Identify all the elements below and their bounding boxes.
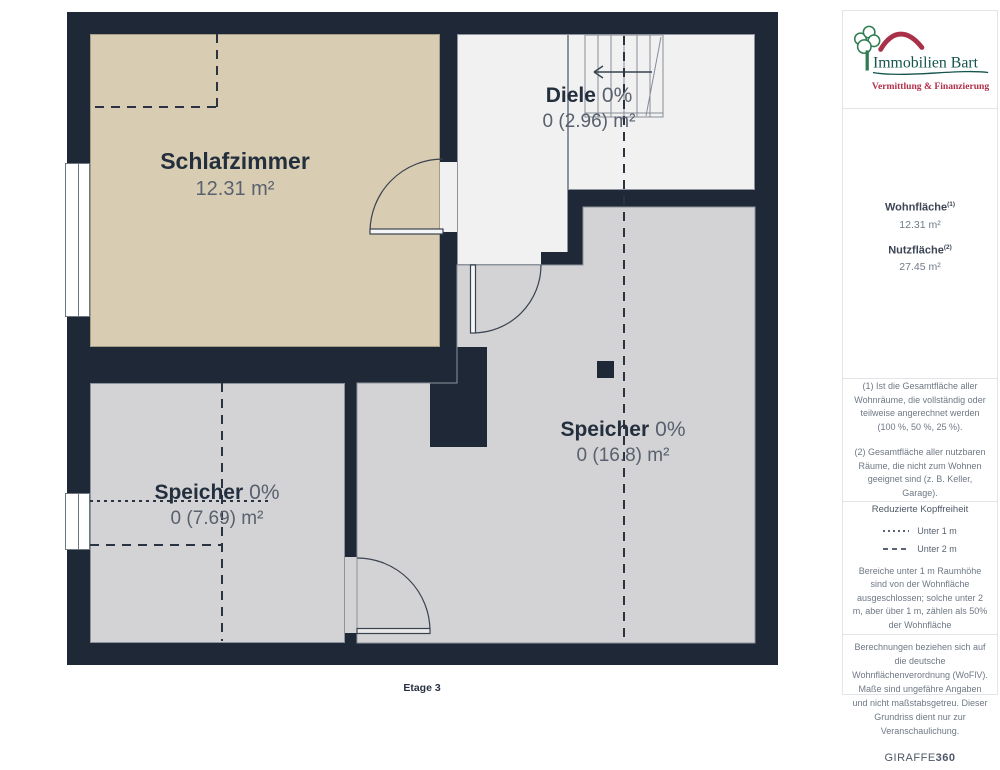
window-schlafzimmer [65,163,90,317]
wall-outer-right [755,12,778,665]
company-logo: Immobilien Bart Vermittlung & Finanzieru… [848,19,992,101]
wall-diele-right [568,207,583,252]
giraffe360-brand: GIRAFFE360 [884,752,955,764]
room-name: Speicher [560,418,649,441]
room-diele-floor [457,34,568,265]
nutzflaeche-label: Nutzfläche(2) [888,244,952,257]
dashed-line-icon [883,548,909,550]
footnote-1: (1) Ist die Gesamtfläche aller Wohnräume… [852,380,988,434]
wall-speicher-divider-stub [345,633,357,643]
legend-under-1m: Unter 1 m [883,526,957,536]
door-opening-schlafzimmer [440,162,457,232]
headroom-note: Bereiche unter 1 m Raumhöhe sind von der… [852,565,988,633]
wall-outer-top [67,12,778,34]
label-speicher-klein: Speicher0% 0 (7.69) m² [108,481,326,530]
headroom-dash-horizontal-schlafzimmer [95,106,217,108]
disclaimer-card: Berechnungen beziehen sich auf die deuts… [843,634,997,770]
legend-label: Unter 1 m [917,526,957,536]
label-diele: Diele0% 0 (2.96) m² [499,84,679,133]
window-speicher [65,493,90,550]
legend-label: Unter 2 m [917,544,957,554]
area-summary-card: Wohnfläche(1) 12.31 m² Nutzfläche(2) 27.… [843,108,997,378]
room-area: 0 (2.96) m² [499,111,679,133]
label-schlafzimmer: Schlafzimmer 12.31 m² [95,148,375,201]
headroom-legend-card: Reduzierte Kopffreiheit Unter 1 m Unter … [843,501,997,634]
wall-schlafzimmer-right-lower [440,232,457,347]
room-percent: 0% [655,418,685,441]
wall-landing-bottom [568,190,755,207]
wohnflaeche-text: Wohnfläche [885,202,947,214]
wall-schlafzimmer-right-upper [440,34,457,162]
wohnflaeche-value: 12.31 m² [899,219,940,231]
room-percent: 0% [602,84,632,107]
dotted-line-icon [883,530,909,532]
wall-schlafzimmer-bottom [67,347,457,383]
nutzflaeche-value: 27.45 m² [899,261,940,273]
legend-under-2m: Unter 2 m [883,544,957,554]
nutzflaeche-text: Nutzfläche [888,244,944,256]
room-percent: 0% [249,481,279,504]
door-opening-speicher [345,557,357,633]
nutzflaeche-sup: (2) [944,244,952,251]
sidebar: Immobilien Bart Vermittlung & Finanzieru… [842,10,998,695]
headroom-dash-horizontal-speicher-klein [90,544,222,546]
footnotes-card: (1) Ist die Gesamtfläche aller Wohnräume… [843,378,997,501]
roof-icon [881,34,922,49]
company-name: Immobilien Bart [873,54,979,71]
room-area: 12.31 m² [95,178,375,201]
brand-suffix: 360 [936,752,956,764]
headroom-dash-vertical-schlafzimmer [216,34,218,107]
logo-card: Immobilien Bart Vermittlung & Finanzieru… [843,11,997,108]
brand-name: GIRAFFE [884,752,935,764]
room-name: Schlafzimmer [160,148,310,174]
company-tagline: Vermittlung & Finanzierung [872,80,989,91]
wall-diele-bottom [541,252,583,265]
wohnflaeche-sup: (1) [947,201,955,208]
chimney-block [597,361,614,378]
floor-label: Etage 3 [372,682,472,694]
headroom-title: Reduzierte Kopffreiheit [872,504,968,515]
wall-center-chunk [430,347,487,447]
tree-icon [855,26,880,53]
wall-speicher-divider [345,383,357,557]
room-name: Speicher [154,481,243,504]
logo-underline [873,71,988,74]
footnote-2: (2) Gesamtfläche aller nutzbaren Räume, … [852,446,988,500]
disclaimer-text: Berechnungen beziehen sich auf die deuts… [852,641,988,739]
wall-outer-bottom [67,643,778,665]
wohnflaeche-label: Wohnfläche(1) [885,201,955,214]
room-area: 0 (7.69) m² [108,508,326,530]
room-area: 0 (16.8) m² [518,445,728,467]
room-name: Diele [546,84,596,107]
floor-plan: Schlafzimmer 12.31 m² Diele0% 0 (2.96) m… [0,0,840,707]
wall-outer-left [67,12,90,665]
label-speicher-gross: Speicher0% 0 (16.8) m² [518,418,728,467]
